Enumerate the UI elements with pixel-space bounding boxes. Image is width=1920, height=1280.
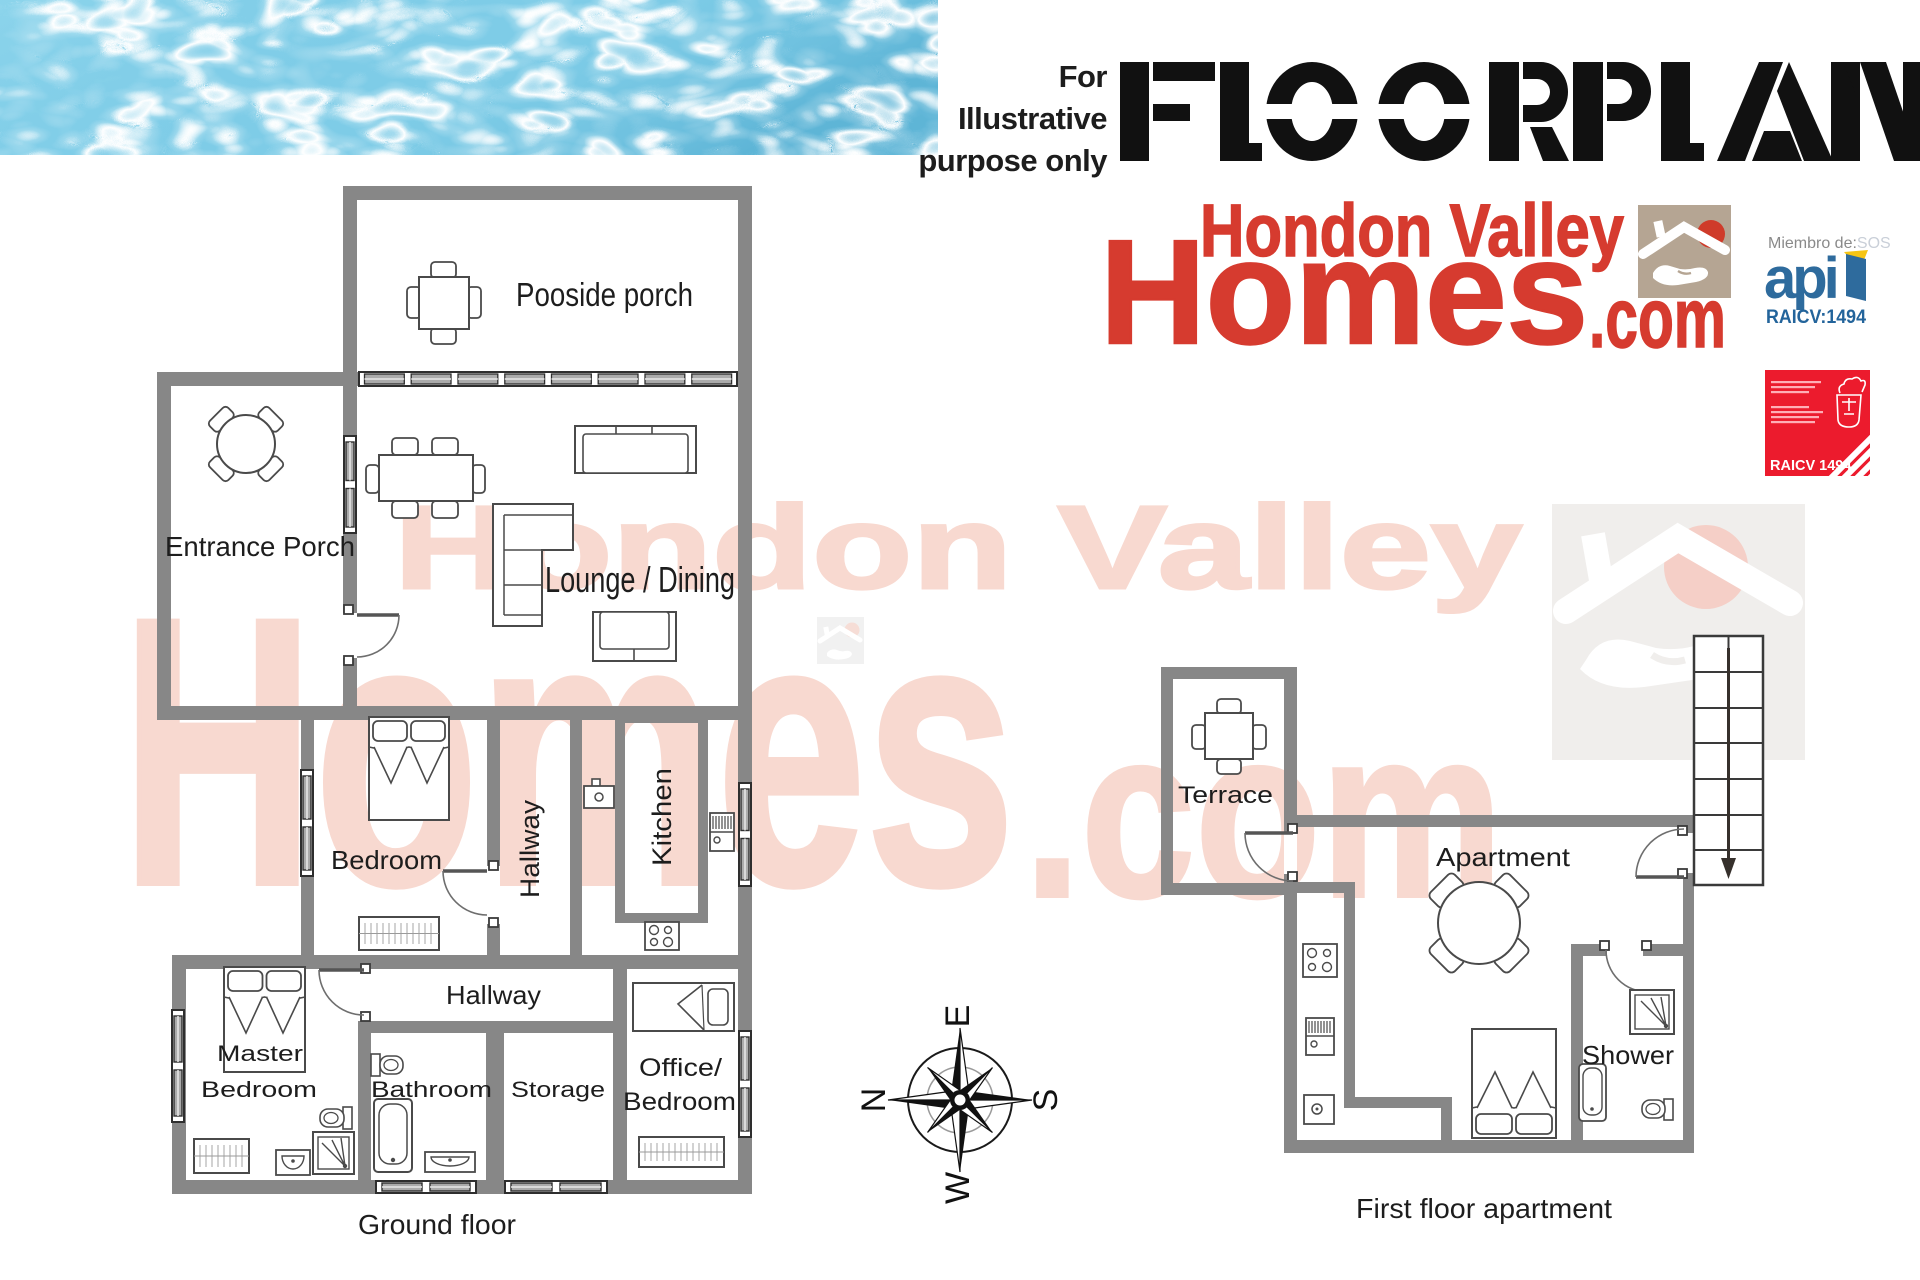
svg-text:Lounge / Dining: Lounge / Dining [545,559,735,600]
svg-text:Ground floor: Ground floor [358,1209,516,1240]
svg-text:First floor apartment: First floor apartment [1356,1193,1612,1224]
svg-text:RAICV:1494: RAICV:1494 [1766,307,1866,328]
svg-text:.com: .com [1024,679,1503,947]
svg-text:S: S [1027,1089,1065,1112]
svg-text:E: E [939,1005,977,1028]
svg-text:Apartment: Apartment [1436,842,1571,872]
svg-text:api: api [1764,246,1837,311]
svg-text:Hallway: Hallway [446,980,541,1010]
svg-text:Kitchen: Kitchen [647,768,677,866]
svg-text:Master: Master [217,1041,303,1066]
svg-text:Bedroom: Bedroom [331,845,442,875]
svg-text:Homes: Homes [1100,210,1588,375]
svg-text:Storage: Storage [511,1077,605,1102]
svg-text:Terrace: Terrace [1178,782,1273,809]
svg-text:Hallway: Hallway [515,799,545,898]
svg-text:N: N [855,1088,893,1113]
svg-text:Bathroom: Bathroom [371,1077,492,1102]
svg-text:Pooside porch: Pooside porch [516,276,693,313]
svg-text:Bedroom: Bedroom [201,1077,317,1102]
svg-text:Bedroom: Bedroom [623,1088,736,1116]
svg-text:Office/: Office/ [639,1054,722,1082]
svg-text:Entrance Porch: Entrance Porch [165,531,355,562]
svg-text:Shower: Shower [1582,1040,1674,1070]
svg-text:Homes: Homes [121,539,1015,964]
svg-text:W: W [939,1172,977,1204]
